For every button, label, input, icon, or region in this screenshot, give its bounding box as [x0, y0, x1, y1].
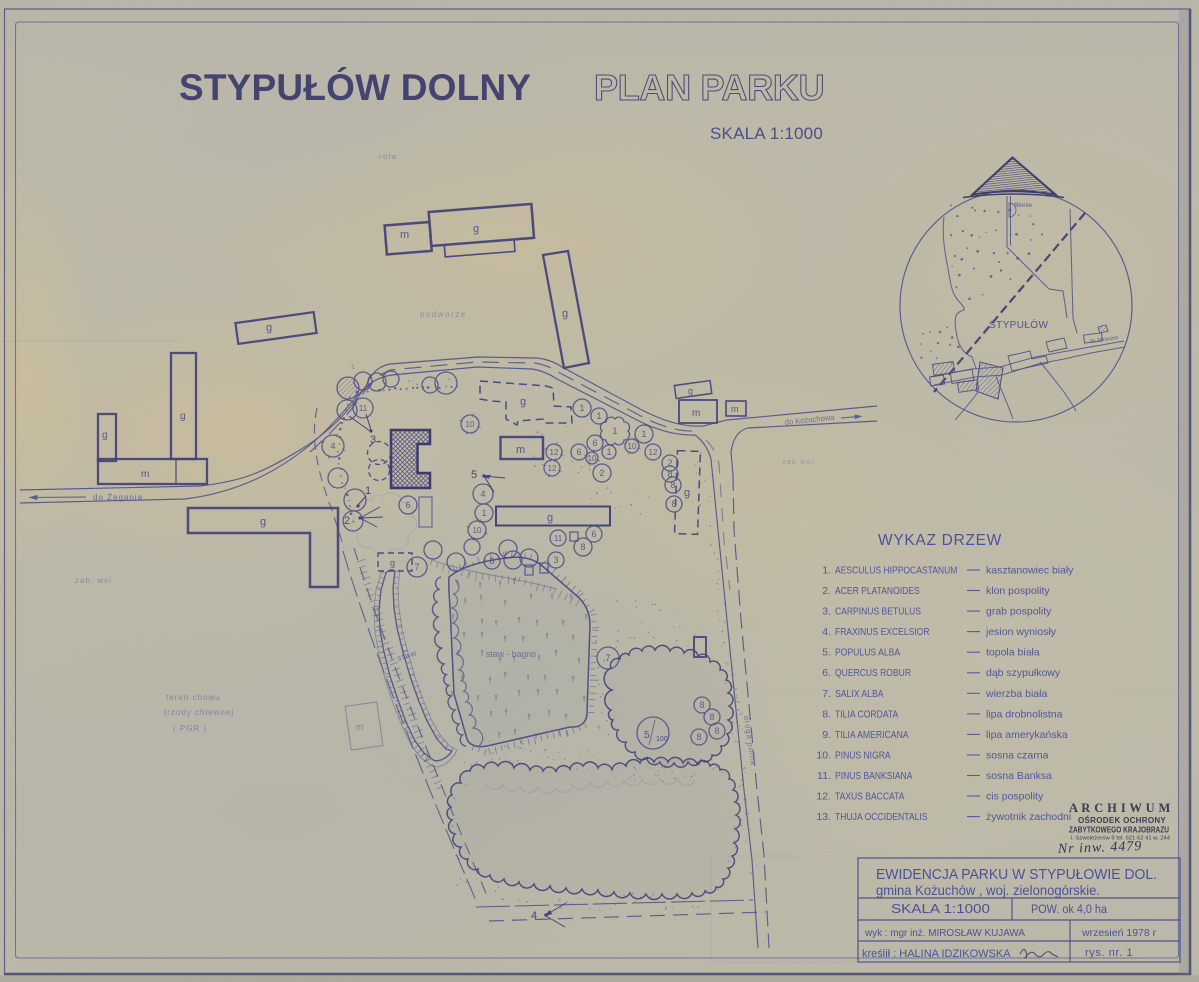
svg-text:12: 12: [550, 448, 559, 457]
svg-text:PINUS NIGRA: PINUS NIGRA: [835, 751, 891, 762]
svg-text:4: 4: [531, 910, 537, 922]
svg-text:6: 6: [591, 529, 596, 539]
svg-text:11.: 11.: [817, 770, 831, 782]
svg-text:g: g: [688, 386, 693, 396]
svg-text:12: 12: [548, 464, 557, 473]
svg-text:g: g: [180, 411, 186, 422]
svg-text:g: g: [547, 512, 553, 524]
svg-text:kasztanowiec biały: kasztanowiec biały: [986, 565, 1074, 577]
svg-text:wrzesień 1978 r: wrzesień 1978 r: [1081, 927, 1157, 939]
svg-text:wyk : mgr inż. MIROSŁAW KUJ: wyk : mgr inż. MIROSŁAW KUJAWA: [864, 927, 1025, 939]
svg-text:rola: rola: [379, 152, 398, 161]
svg-text:gmina Kożuchów , woj. zielon: gmina Kożuchów , woj. zielonogórskie.: [876, 882, 1100, 898]
svg-text:6: 6: [576, 447, 581, 457]
svg-text:QUERCUS ROBUR: QUERCUS ROBUR: [835, 668, 911, 679]
svg-text:4: 4: [330, 441, 335, 451]
svg-text:2.: 2.: [822, 585, 831, 597]
svg-text:AESCULUS HIPPOCASTANUM: AESCULUS HIPPOCASTANUM: [835, 566, 957, 577]
svg-text:9.: 9.: [822, 729, 831, 741]
svg-text:1: 1: [641, 429, 646, 439]
svg-text:PLAN PARKU: PLAN PARKU: [594, 67, 824, 108]
svg-text:m: m: [141, 469, 149, 480]
svg-text:11: 11: [359, 404, 368, 413]
svg-text:grab pospolity: grab pospolity: [986, 606, 1052, 618]
svg-text:3.: 3.: [822, 606, 831, 618]
svg-text:6: 6: [592, 438, 597, 448]
svg-text:zab wsi: zab wsi: [782, 457, 814, 466]
svg-text:g: g: [102, 430, 108, 441]
svg-text:SKALA 1:1000: SKALA 1:1000: [710, 124, 823, 143]
svg-text:wierzba biała: wierzba biała: [985, 688, 1047, 700]
svg-text:7: 7: [414, 562, 419, 572]
svg-text:2: 2: [344, 515, 350, 527]
svg-text:staw - bagno: staw - bagno: [486, 649, 536, 659]
svg-text:trzody chlewnej: trzody chlewnej: [164, 708, 234, 717]
svg-text:PINUS BANKSIANA: PINUS BANKSIANA: [835, 771, 913, 782]
svg-text:topola biała: topola biała: [986, 647, 1040, 659]
svg-text:STYPUŁÓW: STYPUŁÓW: [989, 318, 1048, 331]
svg-text:1: 1: [606, 447, 611, 457]
svg-text:lipa drobnolistna: lipa drobnolistna: [986, 708, 1063, 720]
svg-text:4.: 4.: [822, 626, 831, 638]
svg-text:1: 1: [365, 485, 371, 497]
svg-text:4: 4: [480, 489, 485, 499]
svg-text:FRAXINUS EXCELSIOR: FRAXINUS EXCELSIOR: [835, 627, 930, 638]
svg-text:3: 3: [553, 555, 558, 565]
svg-text:ZABYTKOWEGO KRAJOBRAZU: ZABYTKOWEGO KRAJOBRAZU: [1069, 825, 1169, 835]
svg-text:m: m: [356, 722, 364, 732]
svg-text:8: 8: [580, 542, 585, 552]
svg-text:zab. wsi: zab. wsi: [75, 576, 112, 585]
svg-text:10: 10: [473, 526, 482, 535]
svg-text:7: 7: [605, 653, 610, 663]
svg-text:g: g: [684, 487, 690, 499]
svg-text:do Żagania: do Żagania: [93, 493, 143, 502]
svg-text:tereń chowu: tereń chowu: [166, 693, 221, 702]
svg-text:10: 10: [628, 442, 637, 451]
svg-text:SKALA 1:1000: SKALA 1:1000: [891, 902, 990, 916]
svg-text:g: g: [473, 223, 479, 235]
svg-text:g: g: [260, 516, 266, 528]
svg-text:WYKAZ DRZEW: WYKAZ DRZEW: [878, 532, 1002, 549]
svg-text:żywotnik zachodni: żywotnik zachodni: [986, 811, 1071, 823]
svg-text:6: 6: [405, 500, 410, 510]
svg-text:8: 8: [671, 499, 676, 509]
svg-text:( PGR ): ( PGR ): [173, 724, 207, 733]
svg-text:EWIDENCJA PARKU W STYPUŁOWI: EWIDENCJA PARKU W STYPUŁOWIE DOL.: [876, 866, 1157, 883]
svg-text:rys. nr. 1: rys. nr. 1: [1085, 947, 1133, 959]
svg-text:CARPINUS BETULUS: CARPINUS BETULUS: [835, 607, 921, 618]
svg-text:1: 1: [481, 508, 486, 518]
svg-text:m: m: [400, 229, 409, 241]
svg-text:11: 11: [554, 534, 563, 543]
svg-text:sosna Banksa: sosna Banksa: [986, 770, 1052, 782]
svg-text:12.: 12.: [816, 791, 831, 803]
svg-text:12: 12: [649, 448, 658, 457]
svg-text:g: g: [562, 308, 568, 320]
svg-text:g: g: [520, 396, 526, 408]
svg-text:m: m: [692, 408, 700, 419]
svg-text:10: 10: [466, 420, 475, 429]
svg-text:5: 5: [471, 469, 477, 481]
svg-text:8.: 8.: [822, 708, 831, 720]
svg-text:1: 1: [612, 426, 617, 436]
svg-text:podwórze: podwórze: [420, 310, 467, 319]
svg-text:3: 3: [370, 434, 376, 446]
svg-text:10.: 10.: [816, 750, 831, 762]
svg-text:klon pospolity: klon pospolity: [986, 585, 1050, 597]
svg-text:sosna czarna: sosna czarna: [986, 750, 1049, 762]
svg-text:2: 2: [599, 468, 604, 478]
svg-text:TAXUS BACCATA: TAXUS BACCATA: [835, 792, 905, 803]
svg-text:7.: 7.: [822, 688, 831, 700]
svg-text:m: m: [731, 404, 739, 414]
svg-text:g: g: [390, 558, 395, 568]
svg-text:TILIA AMERICANA: TILIA AMERICANA: [835, 730, 909, 741]
svg-text:POPULUS ALBA: POPULUS ALBA: [835, 648, 900, 659]
svg-text:1: 1: [596, 411, 601, 421]
svg-text:dąb szypułkowy: dąb szypułkowy: [986, 667, 1061, 679]
svg-text:TILIA CORDATA: TILIA CORDATA: [835, 709, 899, 720]
svg-text:2: 2: [667, 458, 672, 468]
svg-text:Nr inw. 4479: Nr inw. 4479: [1057, 839, 1143, 857]
svg-text:jesion wyniosły: jesion wyniosły: [985, 626, 1057, 638]
svg-text:13.: 13.: [816, 811, 831, 823]
svg-text:lipa amerykańska: lipa amerykańska: [986, 729, 1068, 741]
svg-text:g: g: [266, 322, 272, 334]
svg-text:8: 8: [670, 480, 675, 490]
svg-text:POW. ok 4,0 ha: POW. ok 4,0 ha: [1031, 904, 1108, 916]
svg-text:THUJA OCCIDENTALIS: THUJA OCCIDENTALIS: [835, 812, 928, 823]
svg-text:5.: 5.: [822, 647, 831, 659]
svg-text:STYPUŁÓW DOLNY: STYPUŁÓW DOLNY: [179, 66, 531, 108]
svg-text:cis pospolity: cis pospolity: [986, 791, 1044, 803]
svg-text:A R C H I W U M: A R C H I W U M: [1069, 801, 1171, 815]
svg-text:1: 1: [579, 403, 584, 413]
svg-text:1.: 1.: [822, 565, 831, 577]
svg-text:ACER PLATANOIDES: ACER PLATANOIDES: [835, 586, 920, 597]
svg-text:6.: 6.: [822, 667, 831, 679]
svg-text:10: 10: [588, 454, 597, 463]
svg-text:kreślił : HALINA IDZIKOWSKA: kreślił : HALINA IDZIKOWSKA: [862, 948, 1011, 960]
svg-text:SALIX ALBA: SALIX ALBA: [835, 689, 884, 700]
svg-text:Błonie: Błonie: [1014, 202, 1032, 209]
svg-text:8: 8: [667, 469, 672, 479]
svg-text:m: m: [516, 444, 525, 456]
